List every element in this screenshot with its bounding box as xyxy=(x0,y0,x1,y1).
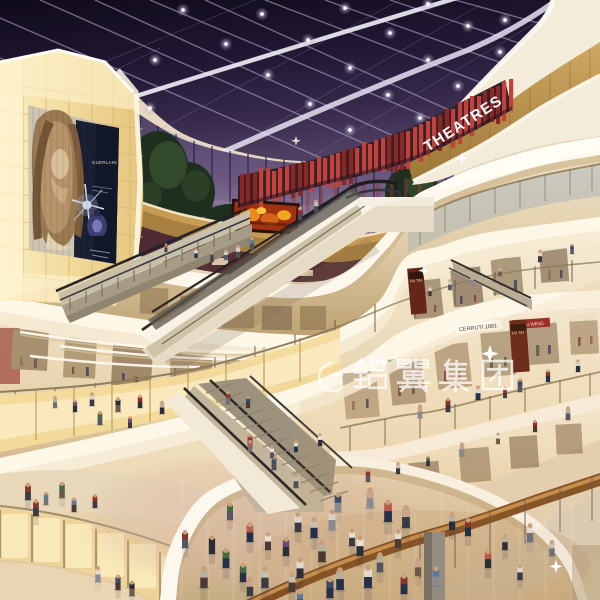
svg-text:GUERLAIN: GUERLAIN xyxy=(92,160,117,165)
